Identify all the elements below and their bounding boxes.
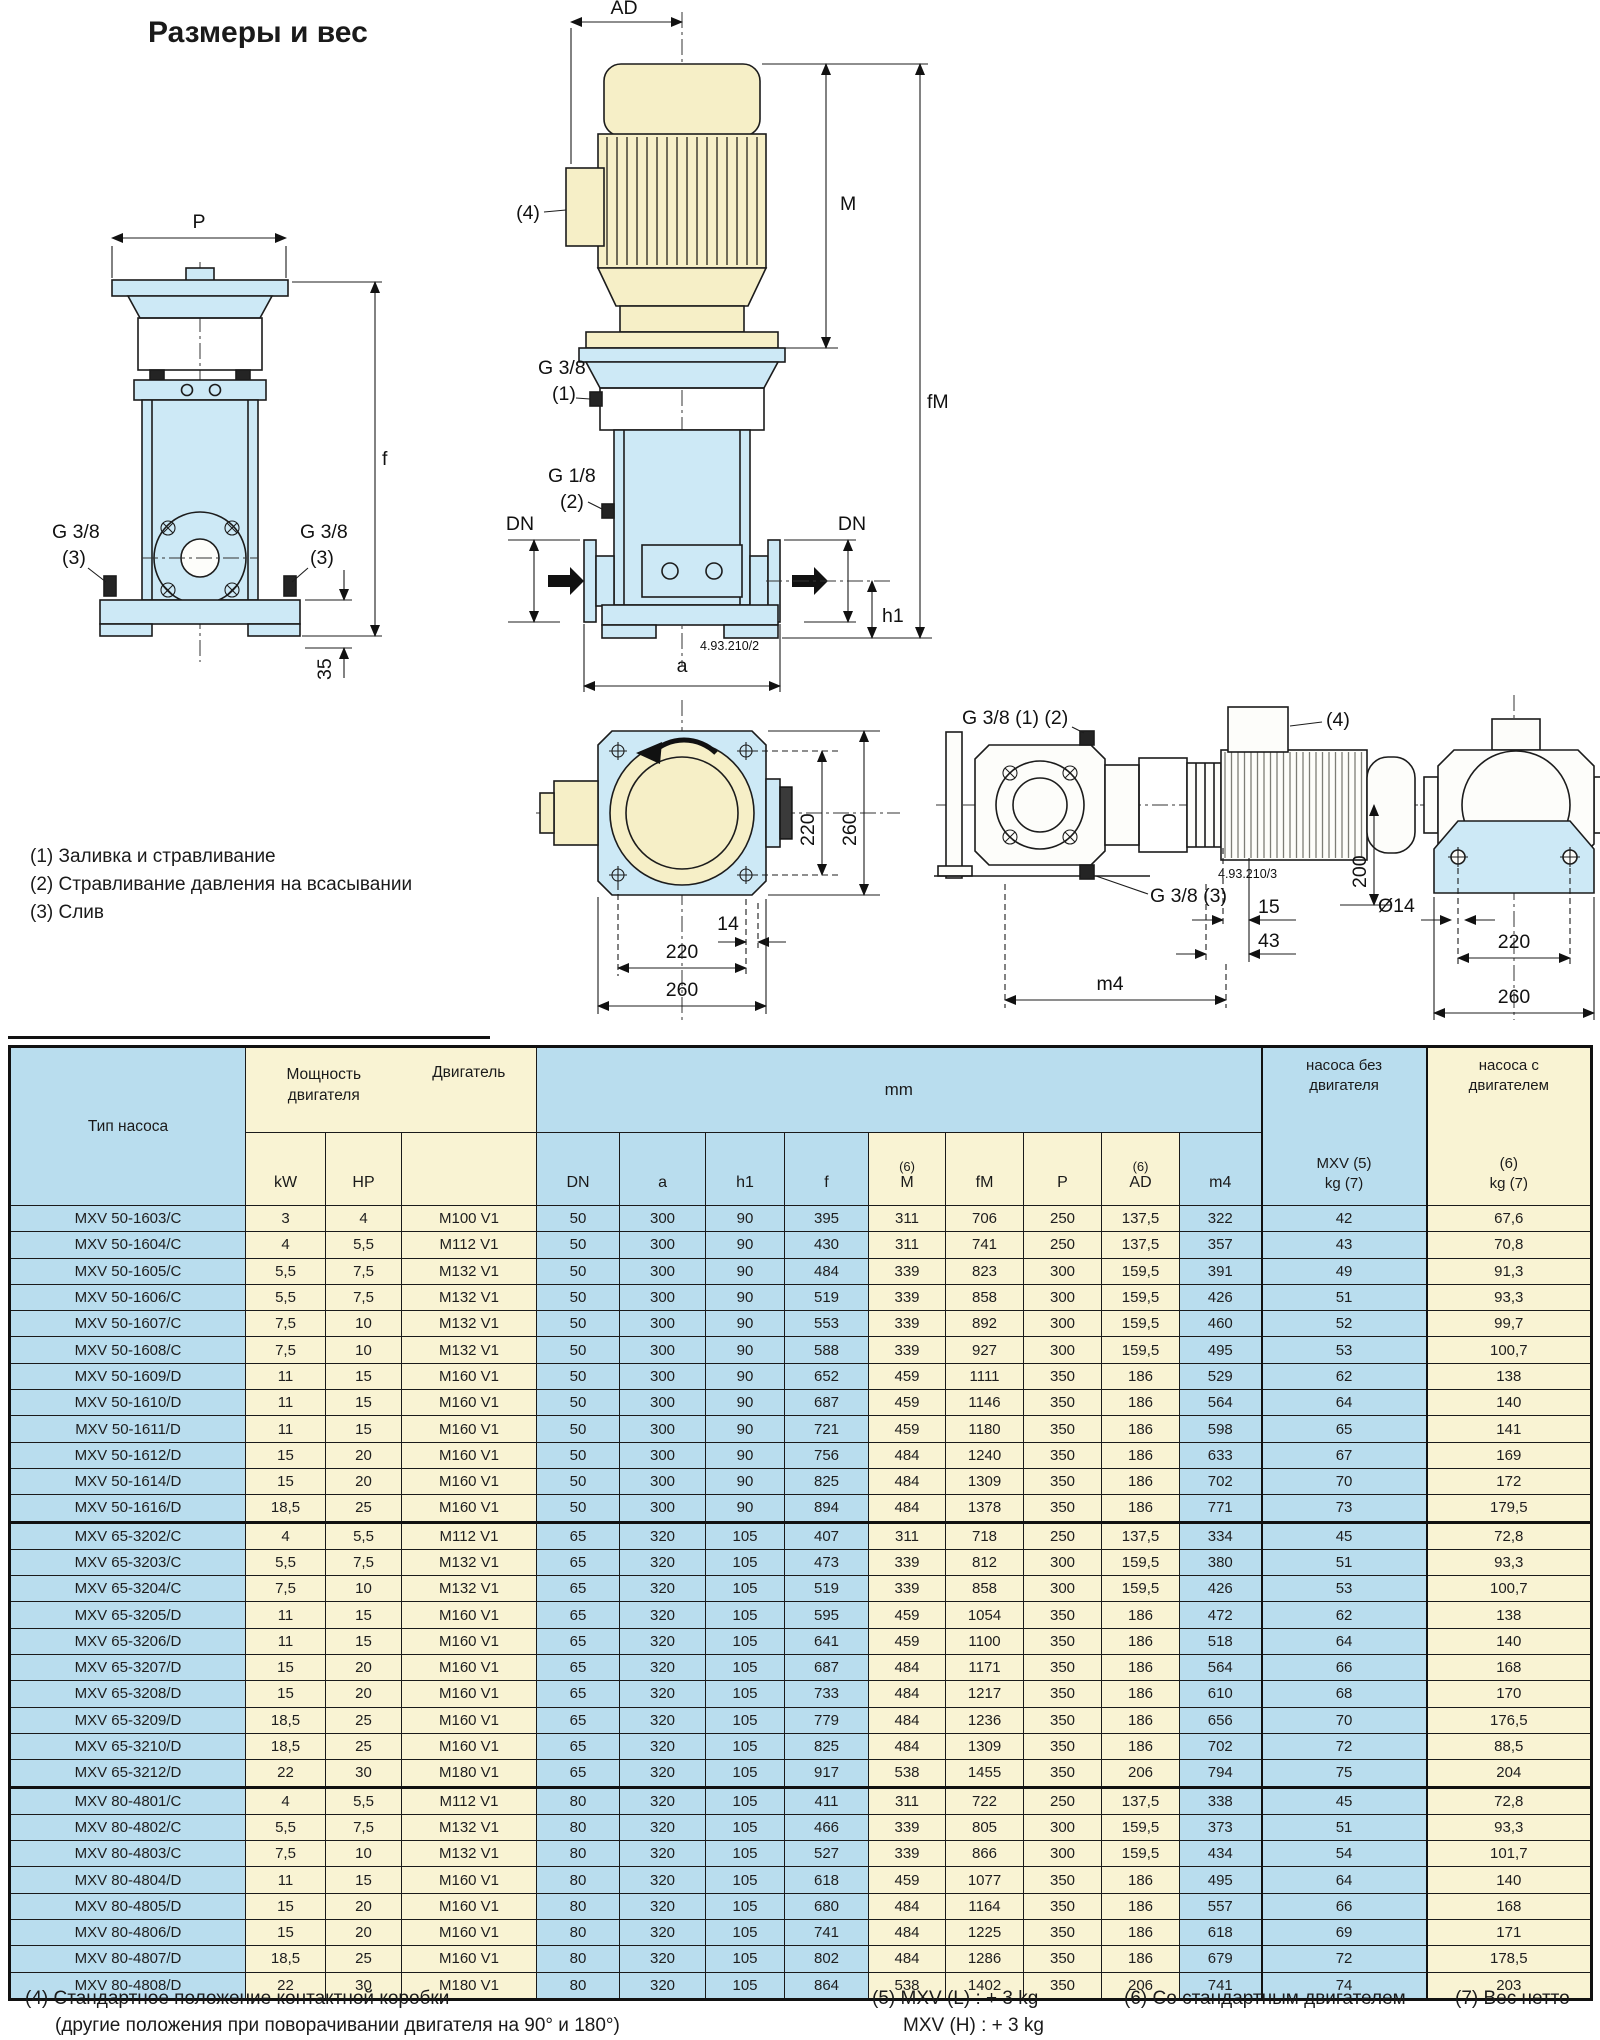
cell-f: 733 xyxy=(785,1681,869,1707)
cell-kw: 18,5 xyxy=(246,1733,326,1759)
cell-h1: 90 xyxy=(706,1337,785,1363)
dim-220v-label: 220 xyxy=(797,813,819,846)
cell-p: 350 xyxy=(1024,1733,1102,1759)
cell-f: 395 xyxy=(785,1206,869,1232)
cell-kw: 4 xyxy=(246,1232,326,1258)
dim-14-label: 14 xyxy=(717,913,739,935)
dim-f-label: f xyxy=(382,448,388,470)
cell-dn: 65 xyxy=(537,1549,620,1575)
cell-dn: 50 xyxy=(537,1468,620,1494)
cell-kg_w: 176,5 xyxy=(1427,1707,1592,1733)
cell-hp: 15 xyxy=(326,1390,402,1416)
cell-type: MXV 65-3202/C xyxy=(10,1522,246,1549)
cell-h1: 105 xyxy=(706,1628,785,1654)
cell-dn: 50 xyxy=(537,1416,620,1442)
table-row: MXV 50-1608/C7,510M132 V1503009058833992… xyxy=(10,1337,1592,1363)
cell-type: MXV 80-4803/C xyxy=(10,1841,246,1867)
header-pump-type: Тип насоса xyxy=(10,1047,246,1206)
port-ref-right: (3) xyxy=(310,547,334,569)
cell-m: 484 xyxy=(869,1681,946,1707)
table-row: MXV 50-1611/D1115M160 V15030090721459118… xyxy=(10,1416,1592,1442)
header-kg1-line1: насоса без xyxy=(1263,1056,1426,1076)
cell-p: 350 xyxy=(1024,1390,1102,1416)
cell-m4: 794 xyxy=(1180,1760,1262,1787)
cell-kg_w: 88,5 xyxy=(1427,1733,1592,1759)
cell-f: 618 xyxy=(785,1867,869,1893)
cell-p: 300 xyxy=(1024,1814,1102,1840)
footnote-5: (5) MXV (L) : + 3 kg MXV (H) : + 3 kg xyxy=(872,1985,1044,2039)
cell-f: 687 xyxy=(785,1390,869,1416)
cell-a: 320 xyxy=(620,1972,706,1999)
cell-kw: 11 xyxy=(246,1602,326,1628)
cell-kw: 5,5 xyxy=(246,1284,326,1310)
footnote-5-line2: MXV (H) : + 3 kg xyxy=(872,2012,1044,2039)
cell-f: 917 xyxy=(785,1760,869,1787)
cell-kg_wo: 43 xyxy=(1262,1232,1427,1258)
cell-dn: 65 xyxy=(537,1760,620,1787)
cell-hp: 15 xyxy=(326,1363,402,1389)
cell-f: 411 xyxy=(785,1787,869,1814)
drawing-code-front: 4.93.210/2 xyxy=(700,639,759,653)
header-kg2-line4: kg (7) xyxy=(1428,1174,1591,1194)
table-row: MXV 80-4804/D1115M160 V18032010561845910… xyxy=(10,1867,1592,1893)
cell-ad: 137,5 xyxy=(1102,1787,1180,1814)
note-1: (1) Заливка и стравливание xyxy=(30,843,412,871)
cell-m: 459 xyxy=(869,1628,946,1654)
cell-h1: 105 xyxy=(706,1841,785,1867)
cell-kw: 7,5 xyxy=(246,1576,326,1602)
header-a: a xyxy=(620,1132,706,1205)
cell-type: MXV 50-1612/D xyxy=(10,1442,246,1468)
cell-m: 311 xyxy=(869,1232,946,1258)
cell-dn: 80 xyxy=(537,1814,620,1840)
cell-m4: 373 xyxy=(1180,1814,1262,1840)
cell-h1: 105 xyxy=(706,1576,785,1602)
cell-kw: 4 xyxy=(246,1522,326,1549)
header-kg1-line2: двигателя xyxy=(1263,1076,1426,1096)
cell-kg_wo: 72 xyxy=(1262,1733,1427,1759)
cell-kg_w: 178,5 xyxy=(1427,1946,1592,1972)
table-group-mxv65: MXV 65-3202/C45,5M112 V16532010540731171… xyxy=(10,1522,1592,1787)
cell-ad: 159,5 xyxy=(1102,1284,1180,1310)
cell-f: 652 xyxy=(785,1363,869,1389)
cell-motor: M160 V1 xyxy=(402,1920,537,1946)
cell-fm: 1309 xyxy=(946,1468,1024,1494)
cell-kw: 11 xyxy=(246,1628,326,1654)
cell-dn: 50 xyxy=(537,1258,620,1284)
table-row: MXV 50-1616/D18,525M160 V150300908944841… xyxy=(10,1495,1592,1522)
cell-hp: 7,5 xyxy=(326,1258,402,1284)
header-ad: (6) AD xyxy=(1102,1132,1180,1205)
cell-a: 320 xyxy=(620,1522,706,1549)
cell-p: 300 xyxy=(1024,1841,1102,1867)
cell-fm: 1077 xyxy=(946,1867,1024,1893)
cell-h1: 105 xyxy=(706,1602,785,1628)
dim-35-label: 35 xyxy=(314,658,336,680)
cell-ad: 186 xyxy=(1102,1416,1180,1442)
cell-h1: 105 xyxy=(706,1549,785,1575)
cell-fm: 866 xyxy=(946,1841,1024,1867)
cell-ad: 186 xyxy=(1102,1733,1180,1759)
cell-kg_w: 101,7 xyxy=(1427,1841,1592,1867)
cell-hp: 15 xyxy=(326,1602,402,1628)
cell-m4: 460 xyxy=(1180,1311,1262,1337)
cell-fm: 1111 xyxy=(946,1363,1024,1389)
cell-m: 538 xyxy=(869,1760,946,1787)
cell-motor: M132 V1 xyxy=(402,1814,537,1840)
cell-h1: 105 xyxy=(706,1814,785,1840)
cell-m4: 472 xyxy=(1180,1602,1262,1628)
dim-m-label: M xyxy=(840,193,856,215)
cell-fm: 1100 xyxy=(946,1628,1024,1654)
cell-hp: 20 xyxy=(326,1681,402,1707)
cell-m4: 426 xyxy=(1180,1284,1262,1310)
front-view-drawing: P G 3/8 (3) G 3/8 xyxy=(52,211,388,680)
cell-hp: 20 xyxy=(326,1893,402,1919)
cell-hp: 5,5 xyxy=(326,1522,402,1549)
cell-dn: 80 xyxy=(537,1867,620,1893)
cell-hp: 25 xyxy=(326,1707,402,1733)
dim-dn-right-label: DN xyxy=(838,513,866,535)
cell-h1: 105 xyxy=(706,1920,785,1946)
dim-d14-label: Ø14 xyxy=(1378,895,1415,917)
cell-type: MXV 65-3210/D xyxy=(10,1733,246,1759)
cell-kw: 11 xyxy=(246,1867,326,1893)
g18-2-label: G 1/8 xyxy=(548,465,596,487)
cell-kg_wo: 64 xyxy=(1262,1628,1427,1654)
header-kg2-line3: (6) xyxy=(1428,1154,1591,1174)
cell-fm: 927 xyxy=(946,1337,1024,1363)
cell-type: MXV 50-1616/D xyxy=(10,1495,246,1522)
footnote-5-line1: (5) MXV (L) : + 3 kg xyxy=(872,1985,1044,2012)
cell-p: 350 xyxy=(1024,1416,1102,1442)
cell-m4: 598 xyxy=(1180,1416,1262,1442)
cell-type: MXV 65-3206/D xyxy=(10,1628,246,1654)
cell-m4: 679 xyxy=(1180,1946,1262,1972)
cell-hp: 7,5 xyxy=(326,1549,402,1575)
cell-a: 320 xyxy=(620,1787,706,1814)
cell-f: 553 xyxy=(785,1311,869,1337)
dimensions-table-wrap: Тип насоса Мощность двигателя Двигатель … xyxy=(8,1045,1593,2001)
cell-f: 825 xyxy=(785,1468,869,1494)
cell-p: 350 xyxy=(1024,1760,1102,1787)
cell-hp: 7,5 xyxy=(326,1814,402,1840)
cell-dn: 65 xyxy=(537,1681,620,1707)
cell-motor: M160 V1 xyxy=(402,1946,537,1972)
port-label-left: G 3/8 xyxy=(52,521,100,543)
cell-f: 466 xyxy=(785,1814,869,1840)
cell-ad: 186 xyxy=(1102,1602,1180,1628)
cell-kg_wo: 53 xyxy=(1262,1337,1427,1363)
cell-ad: 186 xyxy=(1102,1628,1180,1654)
cell-m: 484 xyxy=(869,1655,946,1681)
cell-kw: 15 xyxy=(246,1442,326,1468)
dim-a-label: a xyxy=(677,655,688,677)
cell-motor: M132 V1 xyxy=(402,1576,537,1602)
cell-p: 350 xyxy=(1024,1867,1102,1893)
header-kw: kW xyxy=(246,1132,326,1205)
header-power-line2: двигателя xyxy=(246,1085,402,1106)
cell-p: 300 xyxy=(1024,1549,1102,1575)
cell-p: 350 xyxy=(1024,1442,1102,1468)
cell-f: 864 xyxy=(785,1972,869,1999)
cell-f: 825 xyxy=(785,1733,869,1759)
cell-m: 484 xyxy=(869,1893,946,1919)
table-row: MXV 50-1614/D1520M160 V15030090825484130… xyxy=(10,1468,1592,1494)
cell-p: 350 xyxy=(1024,1920,1102,1946)
cell-h1: 90 xyxy=(706,1495,785,1522)
cell-dn: 50 xyxy=(537,1363,620,1389)
table-row: MXV 65-3205/D1115M160 V16532010559545910… xyxy=(10,1602,1592,1628)
cell-fm: 1054 xyxy=(946,1602,1024,1628)
dim-h1-label: h1 xyxy=(882,605,904,627)
section-divider xyxy=(8,1036,490,1039)
cell-a: 300 xyxy=(620,1206,706,1232)
cell-m4: 322 xyxy=(1180,1206,1262,1232)
cell-type: MXV 65-3212/D xyxy=(10,1760,246,1787)
cell-hp: 7,5 xyxy=(326,1284,402,1310)
cell-motor: M100 V1 xyxy=(402,1206,537,1232)
cell-h1: 90 xyxy=(706,1258,785,1284)
cell-fm: 892 xyxy=(946,1311,1024,1337)
table-row: MXV 50-1609/D1115M160 V15030090652459111… xyxy=(10,1363,1592,1389)
cell-m4: 702 xyxy=(1180,1468,1262,1494)
cell-h1: 105 xyxy=(706,1893,785,1919)
cell-type: MXV 50-1604/C xyxy=(10,1232,246,1258)
cell-motor: M160 V1 xyxy=(402,1390,537,1416)
cell-dn: 65 xyxy=(537,1522,620,1549)
table-row: MXV 65-3203/C5,57,5M132 V165320105473339… xyxy=(10,1549,1592,1575)
cell-kg_w: 72,8 xyxy=(1427,1787,1592,1814)
cell-type: MXV 80-4801/C xyxy=(10,1787,246,1814)
cell-kg_wo: 66 xyxy=(1262,1893,1427,1919)
cell-m: 459 xyxy=(869,1602,946,1628)
cell-type: MXV 80-4805/D xyxy=(10,1893,246,1919)
cell-a: 320 xyxy=(620,1841,706,1867)
cell-m: 484 xyxy=(869,1442,946,1468)
cell-m: 311 xyxy=(869,1522,946,1549)
cell-kg_wo: 64 xyxy=(1262,1867,1427,1893)
cell-ad: 159,5 xyxy=(1102,1549,1180,1575)
header-motor-spacer xyxy=(402,1132,537,1205)
cell-kg_wo: 64 xyxy=(1262,1390,1427,1416)
cell-kw: 5,5 xyxy=(246,1258,326,1284)
cell-type: MXV 65-3208/D xyxy=(10,1681,246,1707)
dim-fm-label: fM xyxy=(927,391,949,413)
cell-m: 459 xyxy=(869,1363,946,1389)
cell-kg_w: 172 xyxy=(1427,1468,1592,1494)
cell-motor: M160 V1 xyxy=(402,1707,537,1733)
cell-kw: 3 xyxy=(246,1206,326,1232)
cell-hp: 20 xyxy=(326,1655,402,1681)
cell-a: 300 xyxy=(620,1258,706,1284)
footnote-4: (4) Стандартное положение контактной кор… xyxy=(25,1985,620,2039)
table-row: MXV 80-4806/D1520M160 V18032010574148412… xyxy=(10,1920,1592,1946)
cell-a: 300 xyxy=(620,1232,706,1258)
cell-m4: 610 xyxy=(1180,1681,1262,1707)
cell-dn: 50 xyxy=(537,1206,620,1232)
cell-p: 300 xyxy=(1024,1311,1102,1337)
cell-m: 339 xyxy=(869,1258,946,1284)
cell-type: MXV 65-3209/D xyxy=(10,1707,246,1733)
cell-p: 250 xyxy=(1024,1522,1102,1549)
vent-port-top-icon xyxy=(1080,731,1094,745)
cell-kw: 7,5 xyxy=(246,1337,326,1363)
cell-type: MXV 65-3203/C xyxy=(10,1549,246,1575)
cell-fm: 1146 xyxy=(946,1390,1024,1416)
flow-arrow-in-icon xyxy=(548,567,584,595)
cell-kg_w: 168 xyxy=(1427,1893,1592,1919)
header-m4: m4 xyxy=(1180,1132,1262,1205)
cell-a: 300 xyxy=(620,1468,706,1494)
footnote-7: (7) Вес нетто xyxy=(1455,1985,1570,2012)
table-row: MXV 50-1605/C5,57,5M132 V150300904843398… xyxy=(10,1258,1592,1284)
cell-ad: 186 xyxy=(1102,1867,1180,1893)
cell-m4: 656 xyxy=(1180,1707,1262,1733)
cell-kw: 7,5 xyxy=(246,1311,326,1337)
cell-hp: 10 xyxy=(326,1311,402,1337)
cell-kg_w: 93,3 xyxy=(1427,1814,1592,1840)
cell-f: 407 xyxy=(785,1522,869,1549)
table-group-mxv80: MXV 80-4801/C45,5M112 V18032010541131172… xyxy=(10,1787,1592,1999)
legend-notes: (1) Заливка и стравливание (2) Стравлива… xyxy=(30,843,412,927)
cell-f: 721 xyxy=(785,1416,869,1442)
cell-fm: 1309 xyxy=(946,1733,1024,1759)
cell-f: 680 xyxy=(785,1893,869,1919)
cell-dn: 65 xyxy=(537,1628,620,1654)
dim-dn-left-label: DN xyxy=(506,513,534,535)
footnote-6: (6) Со стандартным двигателем xyxy=(1124,1985,1406,2012)
cell-motor: M160 V1 xyxy=(402,1442,537,1468)
cell-a: 320 xyxy=(620,1655,706,1681)
port-label-right: G 3/8 xyxy=(300,521,348,543)
cell-f: 527 xyxy=(785,1841,869,1867)
cell-dn: 50 xyxy=(537,1390,620,1416)
cell-kw: 15 xyxy=(246,1920,326,1946)
cell-kg_wo: 67 xyxy=(1262,1442,1427,1468)
cell-h1: 90 xyxy=(706,1206,785,1232)
cell-kw: 15 xyxy=(246,1468,326,1494)
cell-h1: 105 xyxy=(706,1655,785,1681)
cell-h1: 90 xyxy=(706,1232,785,1258)
cell-motor: M132 V1 xyxy=(402,1311,537,1337)
cell-a: 300 xyxy=(620,1442,706,1468)
cell-kw: 18,5 xyxy=(246,1946,326,1972)
cell-a: 300 xyxy=(620,1337,706,1363)
cell-f: 894 xyxy=(785,1495,869,1522)
side-view-drawing: G 3/8 (1) (2) G 3/8 (3) (4) 4.93.210/3 2… xyxy=(934,707,1428,1008)
cell-m: 459 xyxy=(869,1867,946,1893)
cell-ad: 137,5 xyxy=(1102,1232,1180,1258)
cell-m4: 380 xyxy=(1180,1549,1262,1575)
cell-type: MXV 65-3207/D xyxy=(10,1655,246,1681)
cell-type: MXV 50-1606/C xyxy=(10,1284,246,1310)
cell-a: 300 xyxy=(620,1495,706,1522)
cell-h1: 90 xyxy=(706,1390,785,1416)
header-ad-note: (6) xyxy=(1102,1159,1179,1174)
terminal-box-icon xyxy=(566,168,604,246)
cell-fm: 718 xyxy=(946,1522,1024,1549)
cell-kg_wo: 51 xyxy=(1262,1814,1427,1840)
cell-hp: 15 xyxy=(326,1416,402,1442)
cell-fm: 823 xyxy=(946,1258,1024,1284)
cell-kg_wo: 66 xyxy=(1262,1655,1427,1681)
cell-motor: M160 V1 xyxy=(402,1602,537,1628)
cell-m4: 564 xyxy=(1180,1390,1262,1416)
cell-m4: 434 xyxy=(1180,1841,1262,1867)
table-row: MXV 80-4807/D18,525M160 V180320105802484… xyxy=(10,1946,1592,1972)
cell-motor: M160 V1 xyxy=(402,1363,537,1389)
cell-kg_w: 140 xyxy=(1427,1867,1592,1893)
cell-kg_wo: 72 xyxy=(1262,1946,1427,1972)
cell-f: 779 xyxy=(785,1707,869,1733)
cell-m: 311 xyxy=(869,1206,946,1232)
dimensions-table: Тип насоса Мощность двигателя Двигатель … xyxy=(8,1045,1593,2001)
cell-kg_w: 140 xyxy=(1427,1628,1592,1654)
cell-ad: 186 xyxy=(1102,1390,1180,1416)
cell-kg_w: 100,7 xyxy=(1427,1576,1592,1602)
cell-f: 473 xyxy=(785,1549,869,1575)
cell-a: 300 xyxy=(620,1416,706,1442)
note-2: (2) Стравливание давления на всасывании xyxy=(30,871,412,899)
table-row: MXV 65-3204/C7,510M132 V1653201055193398… xyxy=(10,1576,1592,1602)
cell-dn: 65 xyxy=(537,1707,620,1733)
header-motor: Двигатель xyxy=(402,1047,537,1133)
cell-p: 250 xyxy=(1024,1206,1102,1232)
cell-kg_wo: 62 xyxy=(1262,1602,1427,1628)
cell-kg_w: 170 xyxy=(1427,1681,1592,1707)
cell-m: 339 xyxy=(869,1311,946,1337)
cell-fm: 1455 xyxy=(946,1760,1024,1787)
cell-type: MXV 50-1610/D xyxy=(10,1390,246,1416)
cell-ad: 159,5 xyxy=(1102,1311,1180,1337)
table-row: MXV 50-1603/C34M100 V1503009039531170625… xyxy=(10,1206,1592,1232)
cell-kg_w: 138 xyxy=(1427,1363,1592,1389)
cell-m: 484 xyxy=(869,1733,946,1759)
cell-a: 300 xyxy=(620,1363,706,1389)
cell-type: MXV 50-1603/C xyxy=(10,1206,246,1232)
cell-motor: M160 V1 xyxy=(402,1867,537,1893)
cell-motor: M132 V1 xyxy=(402,1284,537,1310)
cell-ad: 186 xyxy=(1102,1442,1180,1468)
cell-kg_w: 67,6 xyxy=(1427,1206,1592,1232)
cell-fm: 812 xyxy=(946,1549,1024,1575)
dim-ad-label: AD xyxy=(610,0,637,19)
cell-fm: 1286 xyxy=(946,1946,1024,1972)
cell-kw: 22 xyxy=(246,1760,326,1787)
cell-m: 484 xyxy=(869,1946,946,1972)
cell-a: 300 xyxy=(620,1311,706,1337)
cell-kg_w: 70,8 xyxy=(1427,1232,1592,1258)
cell-h1: 105 xyxy=(706,1972,785,1999)
cell-fm: 858 xyxy=(946,1576,1024,1602)
cell-kg_wo: 51 xyxy=(1262,1284,1427,1310)
cell-p: 250 xyxy=(1024,1787,1102,1814)
cell-m4: 557 xyxy=(1180,1893,1262,1919)
cell-ad: 159,5 xyxy=(1102,1814,1180,1840)
cell-f: 430 xyxy=(785,1232,869,1258)
header-h1: h1 xyxy=(706,1132,785,1205)
plan-view-drawing: 220 260 14 220 260 xyxy=(536,700,900,1020)
cell-kg_wo: 45 xyxy=(1262,1787,1427,1814)
cell-type: MXV 65-3205/D xyxy=(10,1602,246,1628)
cell-a: 320 xyxy=(620,1814,706,1840)
cell-m: 459 xyxy=(869,1390,946,1416)
dim-m4-label: m4 xyxy=(1096,973,1123,995)
cell-fm: 1240 xyxy=(946,1442,1024,1468)
drawing-code-side: 4.93.210/3 xyxy=(1218,867,1277,881)
table-row: MXV 65-3207/D1520M160 V16532010568748411… xyxy=(10,1655,1592,1681)
